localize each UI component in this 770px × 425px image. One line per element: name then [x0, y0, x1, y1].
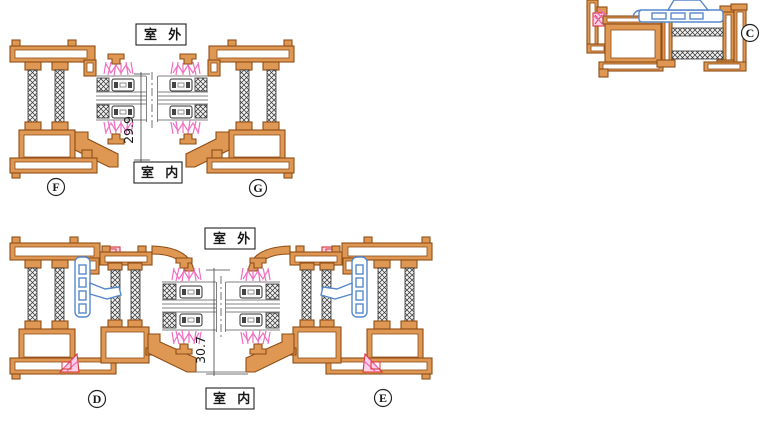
hardware-slider	[633, 0, 723, 22]
outdoor-label-bottom: 室 外	[213, 231, 254, 246]
tag-f-letter: F	[52, 180, 59, 194]
tag-e-letter: E	[379, 391, 387, 405]
outdoor-label-top: 室 外	[144, 27, 185, 42]
tag-g-letter: G	[253, 181, 262, 195]
indoor-label-top: 室 内	[141, 165, 182, 180]
glazing-unit-right	[226, 258, 280, 354]
section-view-c: C	[587, 0, 759, 77]
dimension-value-top: 29.9	[121, 116, 136, 144]
window-profile-drawing: 29.9 室 外 室 内 F G 30.7 室 外 室 内 D E	[0, 0, 770, 425]
tag-d-letter: D	[93, 392, 102, 406]
section-view-fg: 29.9 室 外 室 内 F G	[10, 24, 294, 197]
dimension-value-bottom: 30.7	[193, 336, 208, 364]
thermal-break	[672, 51, 723, 59]
glazing-unit-right	[158, 54, 208, 144]
section-view-de: 30.7 室 外 室 内 D E	[10, 228, 432, 409]
tag-c-letter: C	[746, 26, 755, 40]
thermal-break	[672, 28, 723, 36]
indoor-label-bottom: 室 内	[213, 391, 254, 406]
